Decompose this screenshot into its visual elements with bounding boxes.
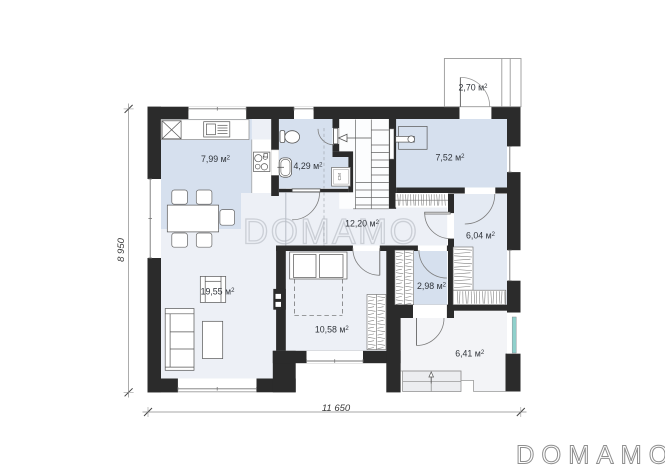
svg-text:СМ: СМ bbox=[337, 173, 343, 180]
svg-text:19,55 м2: 19,55 м2 bbox=[201, 286, 236, 296]
svg-text:7,99 м2: 7,99 м2 bbox=[201, 154, 231, 164]
svg-text:4,29 м2: 4,29 м2 bbox=[294, 161, 324, 171]
svg-text:6,41 м2: 6,41 м2 bbox=[455, 349, 485, 359]
svg-text:10,58 м2: 10,58 м2 bbox=[315, 324, 350, 334]
svg-text:12,20 м2: 12,20 м2 bbox=[345, 219, 380, 229]
svg-text:8 950: 8 950 bbox=[116, 237, 127, 261]
svg-text:11 650: 11 650 bbox=[322, 403, 351, 414]
svg-text:2,70 м2: 2,70 м2 bbox=[459, 83, 489, 93]
svg-text:2,98 м2: 2,98 м2 bbox=[417, 281, 447, 291]
svg-text:7,52 м2: 7,52 м2 bbox=[436, 153, 466, 163]
svg-text:6,04 м2: 6,04 м2 bbox=[466, 231, 496, 241]
svg-text:DOMAMO: DOMAMO bbox=[516, 442, 665, 470]
